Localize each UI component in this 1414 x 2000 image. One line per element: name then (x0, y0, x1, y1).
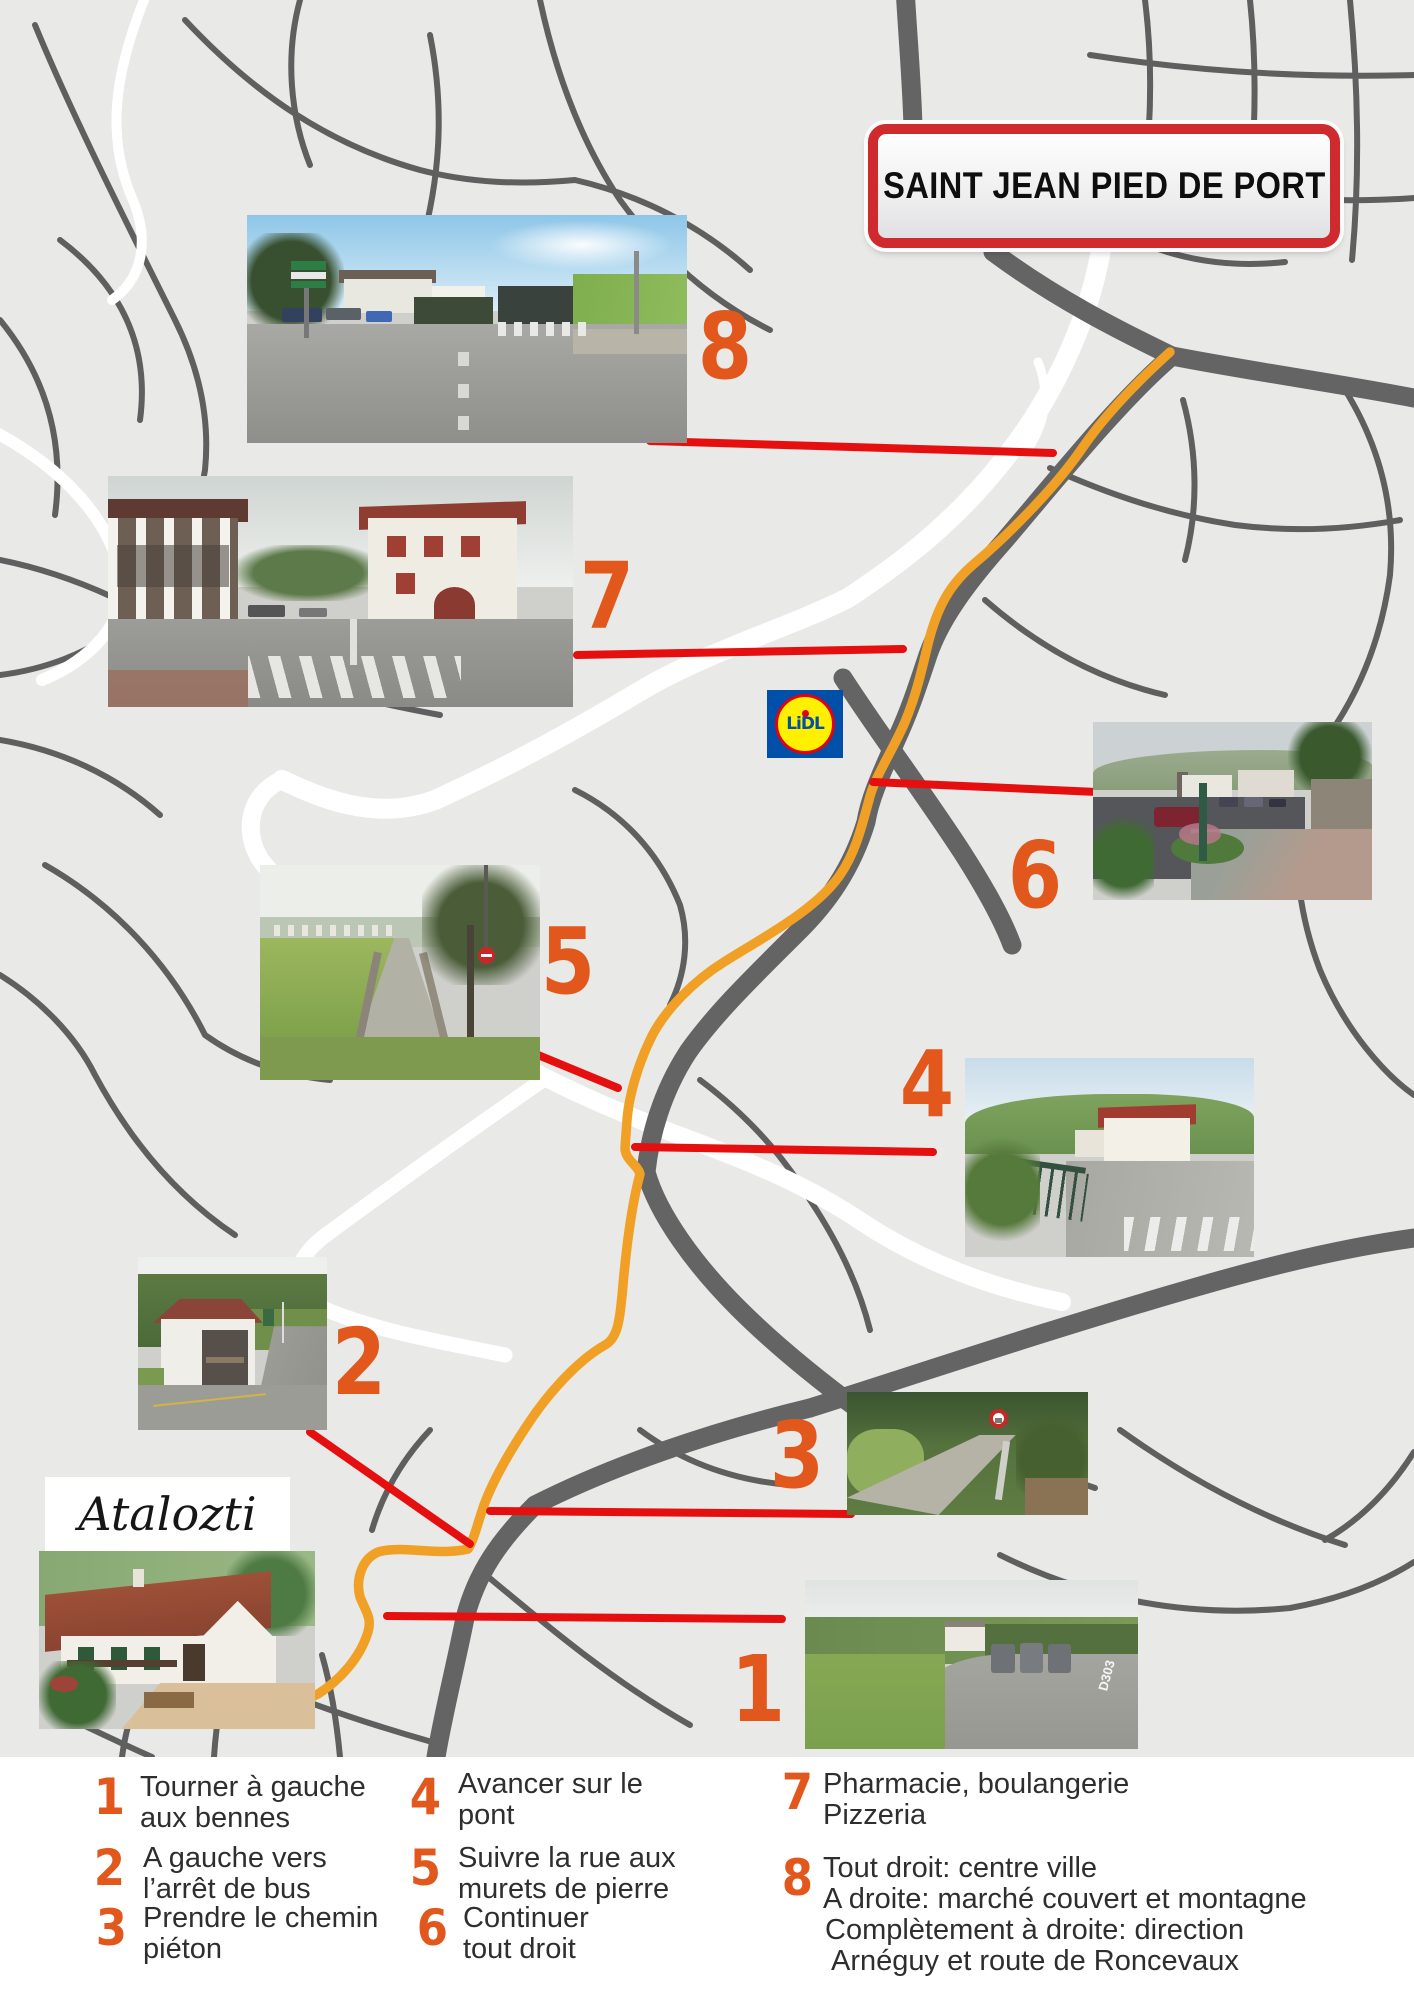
connector-line-1 (387, 1616, 782, 1619)
legend-item-7-text: Pharmacie, boulangeriePizzeria (823, 1769, 1129, 1831)
legend-item-6-number: 6 (417, 1903, 448, 1953)
town-entry-sign: SAINT JEAN PIED DE PORT (868, 124, 1340, 248)
legend-item-3-text: Prendre le cheminpiéton (143, 1903, 378, 1965)
connector-line-8 (650, 441, 1053, 453)
map-marker-8: 8 (698, 301, 752, 393)
legend: 1 Tourner à gaucheaux bennes 2 A gauche … (0, 1757, 1414, 2000)
legend-item-1-number: 1 (94, 1772, 125, 1822)
atalozti-house-photo (39, 1551, 315, 1729)
map-marker-3: 3 (770, 1410, 824, 1502)
lidl-logo: LiDL (767, 690, 843, 758)
streetview-photo-3 (847, 1392, 1088, 1515)
streetview-photo-8 (247, 215, 687, 443)
map-marker-2: 2 (332, 1317, 386, 1409)
route-map-poster: SAINT JEAN PIED DE PORT 8 (0, 0, 1414, 2000)
streetview-photo-4 (965, 1058, 1254, 1257)
atalozti-label: Atalozti (45, 1477, 290, 1551)
legend-item-3-number: 3 (96, 1903, 127, 1953)
legend-item-8-text: Tout droit: centre villeA droite: marché… (823, 1853, 1307, 1977)
streetview-photo-1: D303 (805, 1580, 1138, 1749)
legend-item-2-text: A gauche versl’arrêt de bus (143, 1843, 327, 1905)
streetview-photo-5 (260, 865, 540, 1080)
town-entry-sign-label: SAINT JEAN PIED DE PORT (883, 165, 1326, 207)
legend-item-5-text: Suivre la rue auxmurets de pierre (458, 1843, 676, 1905)
map-marker-1: 1 (731, 1644, 785, 1736)
connector-line-4 (635, 1147, 933, 1152)
map-marker-7: 7 (580, 551, 634, 643)
connector-line-2 (310, 1432, 470, 1544)
legend-item-6-text: Continuertout droit (463, 1903, 589, 1965)
legend-item-8-number: 8 (782, 1853, 813, 1903)
streetview-photo-6 (1093, 722, 1372, 900)
lidl-logo-circle: LiDL (775, 694, 835, 754)
legend-item-2-number: 2 (94, 1843, 125, 1893)
streetview-photo-7 (108, 476, 573, 707)
legend-item-5-number: 5 (410, 1843, 441, 1893)
atalozti-label-text: Atalozti (78, 1487, 256, 1541)
connector-line-3 (490, 1511, 851, 1514)
lidl-i-dot (802, 710, 809, 717)
streetview-photo-2 (138, 1257, 327, 1430)
connector-line-6 (873, 782, 1097, 792)
map-marker-5: 5 (541, 916, 595, 1008)
legend-item-4-text: Avancer sur lepont (458, 1769, 643, 1831)
map-marker-6: 6 (1008, 830, 1062, 922)
map-marker-4: 4 (900, 1039, 954, 1131)
legend-item-1-text: Tourner à gaucheaux bennes (140, 1772, 366, 1834)
legend-item-7-number: 7 (782, 1767, 813, 1817)
legend-item-4-number: 4 (410, 1772, 441, 1822)
lidl-wordmark: LiDL (786, 714, 824, 734)
